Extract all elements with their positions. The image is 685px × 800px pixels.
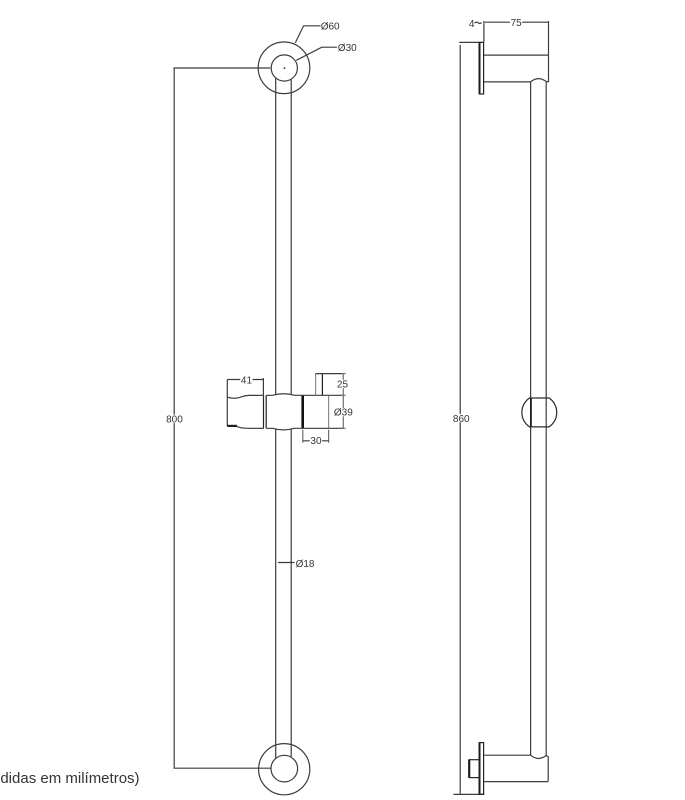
svg-text:4: 4 <box>469 19 475 30</box>
svg-text:41: 41 <box>241 375 253 386</box>
svg-text:800: 800 <box>166 415 183 426</box>
svg-text:Ø60: Ø60 <box>321 21 340 32</box>
svg-text:Ø39: Ø39 <box>334 408 353 419</box>
svg-text:75: 75 <box>511 18 523 29</box>
svg-text:Ø30: Ø30 <box>338 43 357 54</box>
svg-text:25: 25 <box>337 380 349 391</box>
svg-text:860: 860 <box>453 414 470 425</box>
svg-text:(Medidas em milímetros): (Medidas em milímetros) <box>0 770 140 787</box>
svg-text:Ø18: Ø18 <box>296 559 315 570</box>
svg-text:30: 30 <box>310 436 322 447</box>
